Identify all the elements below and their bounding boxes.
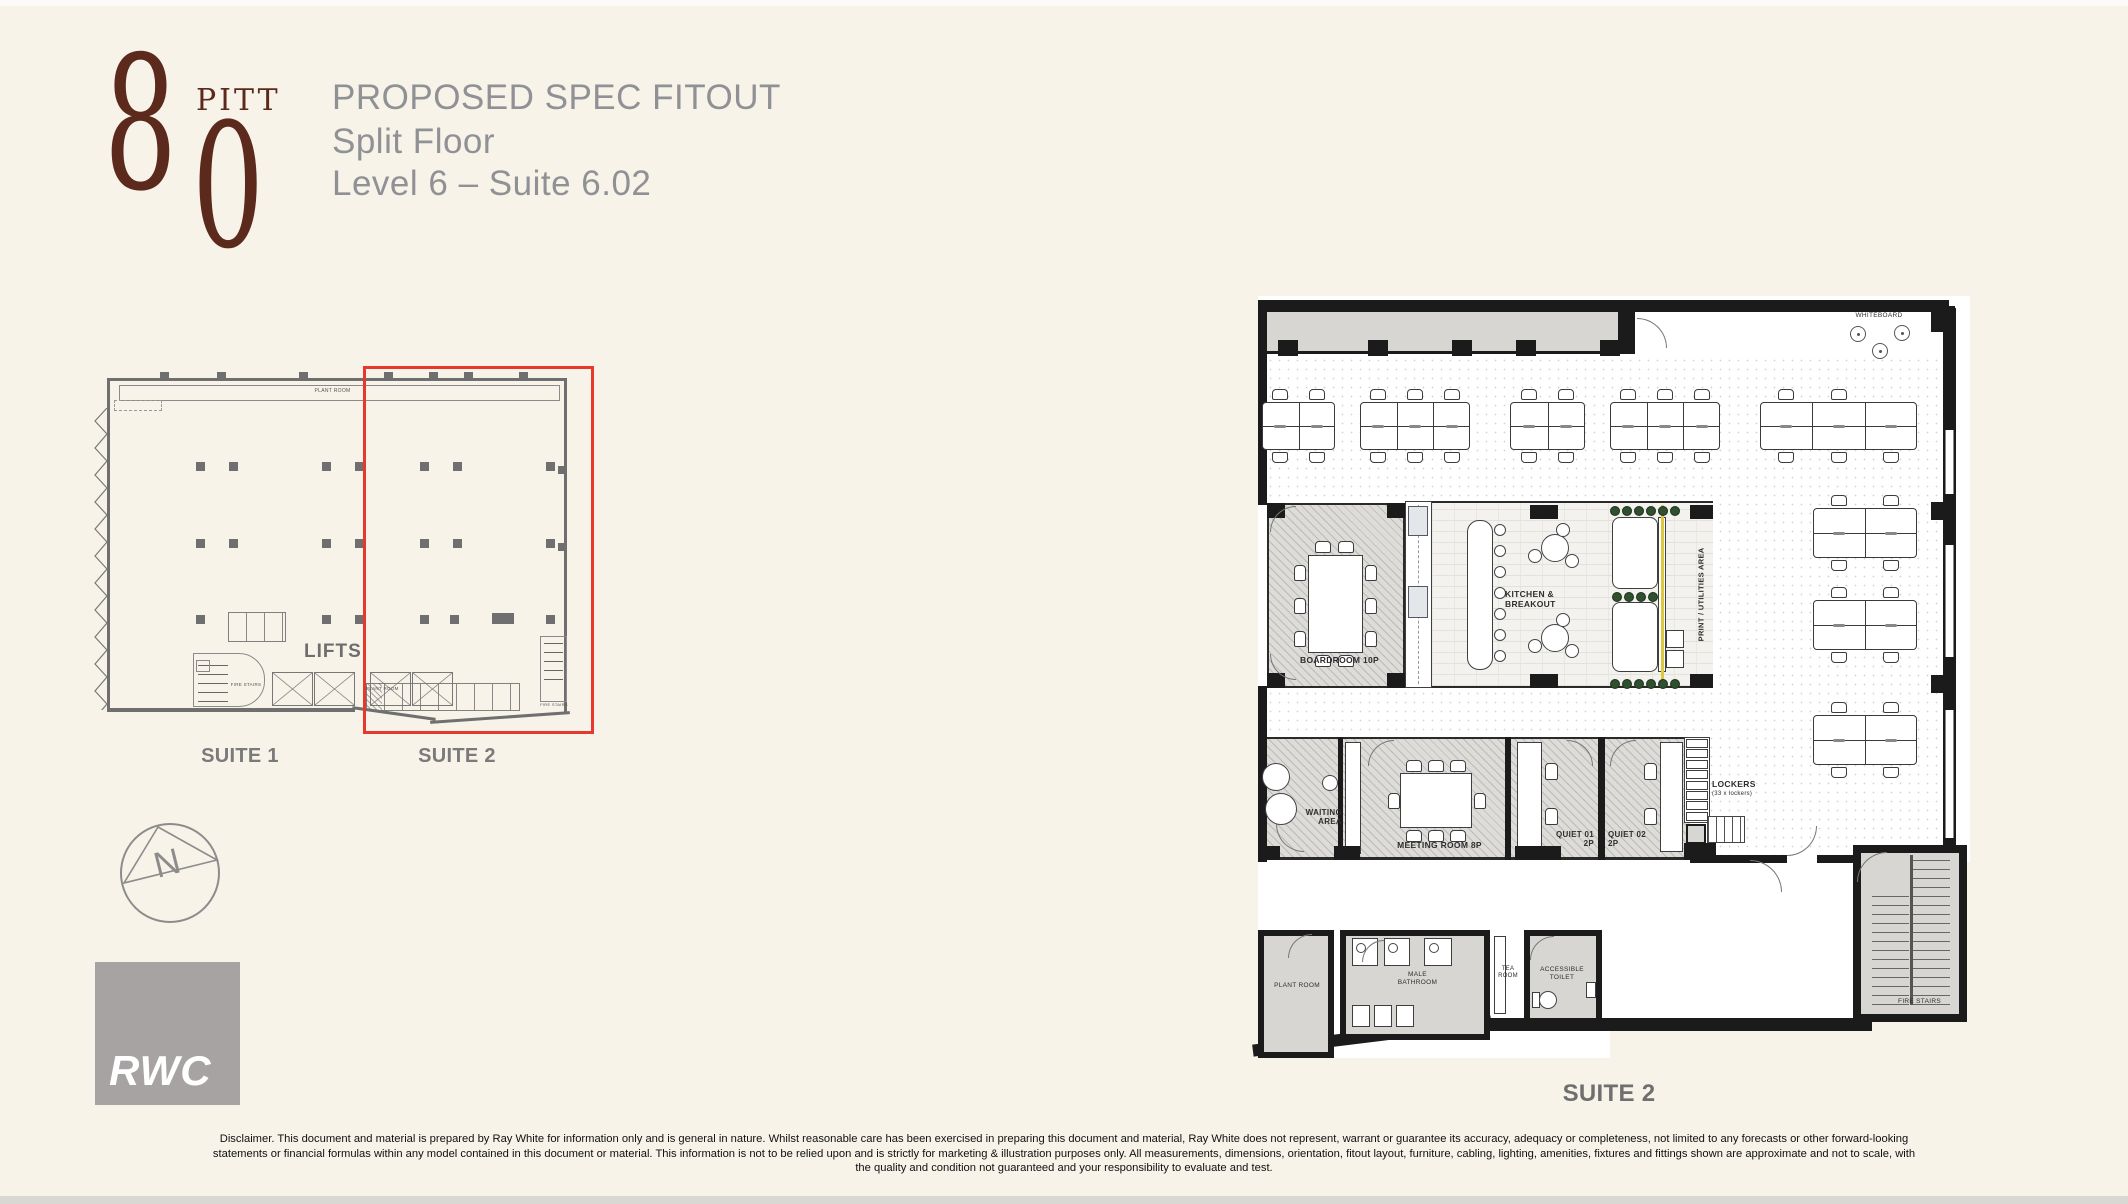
chair [1406,760,1422,772]
room-label: KITCHEN & BREAKOUT [1505,589,1605,609]
chair [1883,767,1899,778]
room-label: ACCESSIBLE TOILET [1533,966,1591,981]
plan-structure [1334,846,1360,860]
round-furniture [1322,775,1338,791]
column-marker [1278,340,1298,356]
room-label: (33 x lockers) [1712,791,1772,798]
page-level-label: Level 6 – Suite 6.02 [332,164,651,204]
plant [1636,592,1646,602]
round-furniture [1429,943,1439,953]
desk-screen [1885,739,1897,742]
round-furniture [1528,549,1542,563]
plan-structure [1707,816,1745,843]
plan-structure [1374,1005,1392,1027]
chair [1657,452,1673,463]
round-furniture [1556,613,1570,627]
plant [1612,592,1622,602]
desk-screen [1885,425,1897,428]
chair [1407,389,1423,400]
locker-cell [1686,812,1708,821]
plan-structure [1612,602,1658,672]
plan-structure [1660,742,1683,852]
column-marker [1530,505,1558,519]
plan-structure [1666,630,1684,648]
desk-screen [1372,425,1384,428]
desk-screen [1560,425,1572,428]
column-marker [1368,340,1388,356]
chair [1407,452,1423,463]
compass-letter: N [149,840,184,886]
column-marker [1530,674,1558,688]
plan-structure [1384,938,1410,966]
chair [1272,389,1288,400]
plan-structure [1945,430,1954,494]
plan-structure [1913,855,1950,1005]
desk-screen [1622,425,1634,428]
desk-screen [1885,624,1897,627]
plan-structure [1945,545,1954,657]
plan-structure [1666,650,1684,668]
overview-structure [107,708,355,712]
chair [1294,631,1306,647]
round-furniture [1528,639,1542,653]
suite2-label: SUITE 2 [392,745,522,769]
chair [1883,652,1899,663]
plan-structure [1258,300,1949,312]
chair [1444,452,1460,463]
plant [1634,679,1644,689]
chair [1545,763,1558,780]
lift-shaft [314,672,355,706]
chair [1294,598,1306,614]
round-furniture [1494,566,1506,578]
desk-screen [1409,425,1421,428]
chair [1778,452,1794,463]
desk-screen [1885,532,1897,535]
desk-screen [1780,425,1792,428]
lifts-label: LIFTS [304,641,362,663]
column-marker [322,539,331,548]
room-label: QUIET 02 2P [1608,830,1654,849]
desk-divider [1511,426,1584,427]
chair [1558,452,1574,463]
room-label: TEA ROOM [1492,966,1524,980]
disclaimer-line-2: statements or financial formulas within … [40,1147,2088,1162]
chair [1272,452,1288,463]
plant [1610,506,1620,516]
column-marker [196,615,205,624]
plan-structure [1424,938,1452,966]
plant [1670,679,1680,689]
plan-structure [1258,737,1267,862]
logo-word-pitt: PITT [196,83,281,118]
north-compass-icon: N [118,821,222,925]
room-label: WAITING AREA [1290,808,1342,827]
chair [1620,452,1636,463]
plant [1670,506,1680,516]
room-label: MEETING ROOM 8P [1392,840,1487,850]
chair [1309,389,1325,400]
room-label: PRINT / UTILITIES AREA [1698,539,1707,649]
overview-structure [196,660,210,672]
plant [1646,679,1656,689]
plan-structure [1400,773,1472,828]
column-marker [1600,340,1620,356]
chair [1444,389,1460,400]
room-label: QUIET 01 2P [1548,830,1594,849]
column-marker [229,539,238,548]
round-furniture [1494,545,1506,557]
desk-screen [1833,624,1845,627]
plant [1648,592,1658,602]
plan-structure [1586,982,1596,998]
chair [1883,452,1899,463]
column-marker [217,372,226,381]
locker-cell [1686,770,1708,779]
overview-structure [228,612,286,642]
chair [1644,763,1657,780]
chair [1309,452,1325,463]
chair [1831,767,1847,778]
round-furniture [1494,524,1506,536]
document-page: 8 0 PITT PROPOSED SPEC FITOUT Split Floo… [0,0,2128,1204]
plan-structure [1345,742,1361,854]
plan-structure [1408,586,1428,618]
desk-divider [1814,533,1916,534]
round-furniture [1494,608,1506,620]
column-marker [229,462,238,471]
column-marker [1618,312,1635,354]
plant [1622,506,1632,516]
overview-plantroom-label: PLANT ROOM [305,389,360,395]
plant [1610,679,1620,689]
column-marker [160,372,169,381]
chair [1294,565,1306,581]
plan-structure [1910,855,1913,1005]
page-subtitle: Split Floor [332,122,495,162]
round-furniture [1388,943,1398,953]
logo-digit-8: 8 [104,32,177,217]
plan-structure [1267,312,1635,354]
column-marker [196,462,205,471]
chair [1831,452,1847,463]
disclaimer-line-1: Disclaimer. This document and material i… [40,1132,2088,1147]
rwc-logo: RWC [95,962,240,1105]
plan-structure [1396,1005,1414,1027]
lift-shaft [272,672,313,706]
chair [1644,808,1657,825]
round-furniture [1565,554,1579,568]
plant [1622,679,1632,689]
room-label: PLANT ROOM [1266,982,1328,990]
column-marker [1452,340,1472,356]
chair [1521,452,1537,463]
plan-structure [1945,710,1954,838]
plan-structure [1260,846,1280,860]
desk-screen [1446,425,1458,428]
chair [1694,389,1710,400]
chair [1831,495,1847,506]
room-label: MALE BATHROOM [1390,971,1445,986]
chair [1883,495,1899,506]
plant [1634,506,1644,516]
bottom-bar [0,1196,2128,1204]
chair [1883,702,1899,713]
column-marker [1387,503,1405,518]
desk-screen [1833,532,1845,535]
plan-structure [1690,855,1863,863]
locker-cell [1686,791,1708,800]
plan-structure [1931,675,1955,693]
column-marker [299,372,308,381]
chair [1521,389,1537,400]
plan-structure [1612,517,1658,589]
overview-structure [114,400,162,411]
plant [1658,506,1668,516]
rwc-logo-text: RWC [109,1047,212,1095]
chair [1315,541,1331,553]
chair [1831,587,1847,598]
desk-divider [1814,625,1916,626]
plant [1646,506,1656,516]
plan-structure [1600,862,1855,1024]
chair [1545,808,1558,825]
locker-cell [1686,760,1708,769]
chair [1388,793,1400,809]
plan-structure [1517,742,1542,852]
disclaimer: Disclaimer. This document and material i… [40,1132,2088,1176]
plan-structure [1598,737,1605,860]
chair [1831,560,1847,571]
chair [1474,793,1486,809]
stool-icon [1894,325,1910,341]
chair [1365,598,1377,614]
round-furniture [1565,644,1579,658]
plan-structure [1467,520,1493,670]
column-marker [322,462,331,471]
round-furniture [1556,523,1570,537]
room-label: LOCKERS [1712,779,1772,789]
room-label: WHITEBOARD [1844,312,1914,320]
round-furniture [1494,650,1506,662]
chair [1883,587,1899,598]
column-marker [1387,673,1405,688]
chair [1657,389,1673,400]
suite2-highlight-box [363,366,594,734]
plan-structure [1338,737,1343,860]
plan-structure [1931,502,1955,520]
round-furniture [1262,763,1290,791]
desk-screen [1311,425,1323,428]
plant [1624,592,1634,602]
plant [1658,679,1668,689]
chair [1338,541,1354,553]
disclaimer-line-3: the quality and condition not guaranteed… [40,1161,2088,1176]
chair [1450,760,1466,772]
locker-cell [1686,781,1708,790]
chair [1883,560,1899,571]
overview-firestairs-label: FIRE STAIRS [225,682,267,687]
desk-screen [1659,425,1671,428]
room-label: BOARDROOM 10P [1292,655,1387,665]
plan-structure [1308,555,1363,653]
desk-screen [1833,425,1845,428]
column-marker [1690,505,1713,519]
column-marker [322,615,331,624]
suite1-label: SUITE 1 [175,745,305,769]
logo-digit-0: 0 [192,101,264,273]
stool-icon [1872,343,1888,359]
plan-structure [1872,893,1909,1005]
round-furniture [1494,629,1506,641]
page-title: PROPOSED SPEC FITOUT [332,78,781,118]
plan-structure [1408,506,1428,536]
chair [1365,631,1377,647]
column-marker [1516,340,1536,356]
facade-zigzag [93,408,113,710]
desk-screen [1833,739,1845,742]
desk-screen [1696,425,1708,428]
plan-structure [1505,737,1511,860]
chair [1831,389,1847,400]
chair [1370,452,1386,463]
column-marker [1690,674,1713,688]
top-edge-strip [0,0,2128,6]
plan-structure [1352,1005,1370,1027]
chair [1365,565,1377,581]
chair [1694,452,1710,463]
locker-cell [1686,749,1708,758]
locker-cell [1686,739,1708,748]
desk-screen [1523,425,1535,428]
room-label: FIRE STAIRS [1892,998,1947,1006]
desk-screen [1274,425,1286,428]
chair [1428,760,1444,772]
chair [1370,389,1386,400]
chair [1831,652,1847,663]
column-marker [196,539,205,548]
round-furniture [1539,991,1557,1009]
plan-structure [1258,686,1267,740]
chair [1558,389,1574,400]
stool-icon [1850,326,1866,342]
locker-cell [1686,801,1708,810]
desk-divider [1814,740,1916,741]
plan-structure [1787,855,1817,863]
chair [1778,389,1794,400]
chair [1831,702,1847,713]
chair [1620,389,1636,400]
detail-suite2-label: SUITE 2 [1534,1080,1684,1108]
plan-structure [1686,824,1706,844]
plan-structure [1661,505,1664,689]
